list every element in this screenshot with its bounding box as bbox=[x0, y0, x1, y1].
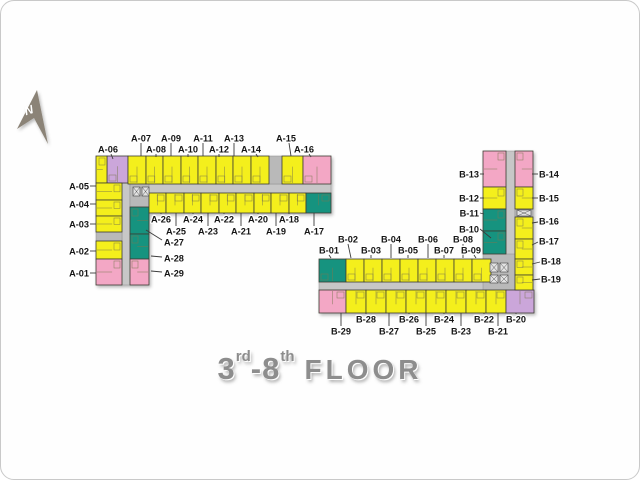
unit-label-B-28: B-28 bbox=[356, 315, 376, 325]
unit-label-B-09: B-09 bbox=[461, 246, 481, 256]
unit-label-A-10: A-10 bbox=[178, 145, 198, 155]
unit-label-A-11: A-11 bbox=[193, 134, 212, 144]
unit-label-B-07: B-07 bbox=[434, 246, 454, 256]
unit-label-A-22: A-22 bbox=[214, 215, 234, 225]
unit-label-B-05: B-05 bbox=[398, 246, 418, 256]
unit-label-A-03: A-03 bbox=[69, 220, 89, 230]
unit-label-A-16: A-16 bbox=[294, 145, 314, 155]
unit-label-B-02: B-02 bbox=[338, 235, 358, 245]
north-compass: N bbox=[17, 90, 48, 144]
unit-label-B-23: B-23 bbox=[451, 327, 471, 337]
floor-plan-drawing: N A-07A-09A-11A-13A-15A-06A-08A-10A-12A-… bbox=[1, 1, 640, 480]
unit-label-A-15: A-15 bbox=[276, 134, 296, 144]
floor-num-start: 3 bbox=[218, 351, 236, 386]
unit-label-B-22: B-22 bbox=[474, 315, 494, 325]
unit-label-A-04: A-04 bbox=[69, 200, 90, 210]
unit-label-A-06: A-06 bbox=[98, 145, 118, 155]
unit-label-B-16: B-16 bbox=[539, 217, 559, 227]
unit-label-A-07: A-07 bbox=[131, 134, 151, 144]
floor-num-end: 8 bbox=[262, 351, 280, 386]
unit-label-A-27: A-27 bbox=[164, 238, 184, 248]
unit-label-B-06: B-06 bbox=[418, 235, 438, 245]
ordinal-suffix: th bbox=[280, 348, 294, 365]
unit-label-B-21: B-21 bbox=[488, 327, 508, 337]
label-leader-A-15 bbox=[289, 143, 291, 156]
unit-label-B-26: B-26 bbox=[399, 315, 419, 325]
unit-label-B-04: B-04 bbox=[381, 235, 402, 245]
service-core bbox=[96, 232, 122, 241]
unit-label-B-18: B-18 bbox=[541, 257, 561, 267]
unit-label-B-19: B-19 bbox=[541, 275, 561, 285]
unit-label-B-10: B-10 bbox=[459, 225, 479, 235]
ordinal-suffix: rd bbox=[236, 348, 251, 365]
unit-label-B-24: B-24 bbox=[434, 315, 455, 325]
unit-label-A-24: A-24 bbox=[183, 215, 204, 225]
unit-label-A-21: A-21 bbox=[231, 227, 251, 237]
unit-label-A-19: A-19 bbox=[266, 227, 286, 237]
unit-label-A-12: A-12 bbox=[209, 145, 229, 155]
corridor bbox=[130, 184, 331, 193]
unit-label-A-17: A-17 bbox=[304, 227, 324, 237]
unit-label-A-26: A-26 bbox=[151, 215, 171, 225]
label-leader-B-02 bbox=[348, 244, 351, 258]
unit-label-B-20: B-20 bbox=[506, 315, 526, 325]
unit-label-A-08: A-08 bbox=[146, 145, 166, 155]
unit-label-A-09: A-09 bbox=[161, 134, 181, 144]
unit-label-A-02: A-02 bbox=[69, 247, 89, 257]
unit-label-B-13: B-13 bbox=[459, 170, 479, 180]
unit-label-A-13: A-13 bbox=[224, 134, 244, 144]
service-core bbox=[269, 156, 282, 184]
unit-label-A-18: A-18 bbox=[279, 215, 299, 225]
unit-label-B-29: B-29 bbox=[331, 327, 351, 337]
unit-label-B-01: B-01 bbox=[319, 246, 339, 256]
unit-label-B-17: B-17 bbox=[539, 237, 559, 247]
north-arrow-icon bbox=[17, 90, 48, 144]
floor-plan-card: N A-07A-09A-11A-13A-15A-06A-08A-10A-12A-… bbox=[0, 0, 640, 480]
unit-label-A-20: A-20 bbox=[248, 215, 268, 225]
unit-label-A-23: A-23 bbox=[198, 227, 218, 237]
unit-label-A-14: A-14 bbox=[241, 145, 262, 155]
unit-label-A-28: A-28 bbox=[164, 254, 184, 264]
floor-word: FLOOR bbox=[305, 354, 423, 385]
floor-range-dash: - bbox=[251, 351, 262, 386]
unit-label-B-27: B-27 bbox=[379, 327, 399, 337]
label-leader-A-28 bbox=[151, 256, 162, 257]
unit-label-B-03: B-03 bbox=[361, 246, 381, 256]
unit-label-A-29: A-29 bbox=[164, 269, 184, 279]
floor-range-title: 3rd-8thFLOOR bbox=[1, 351, 639, 387]
unit-label-B-08: B-08 bbox=[453, 235, 473, 245]
unit-label-A-25: A-25 bbox=[166, 227, 186, 237]
unit-label-B-11: B-11 bbox=[460, 209, 479, 219]
unit-label-A-01: A-01 bbox=[69, 269, 89, 279]
unit-label-A-05: A-05 bbox=[69, 182, 89, 192]
unit-label-B-12: B-12 bbox=[459, 194, 479, 204]
corridor bbox=[122, 183, 130, 285]
unit-label-B-15: B-15 bbox=[539, 194, 559, 204]
unit-label-B-14: B-14 bbox=[539, 170, 560, 180]
unit-label-B-25: B-25 bbox=[416, 327, 436, 337]
label-leader-A-29 bbox=[151, 271, 162, 272]
